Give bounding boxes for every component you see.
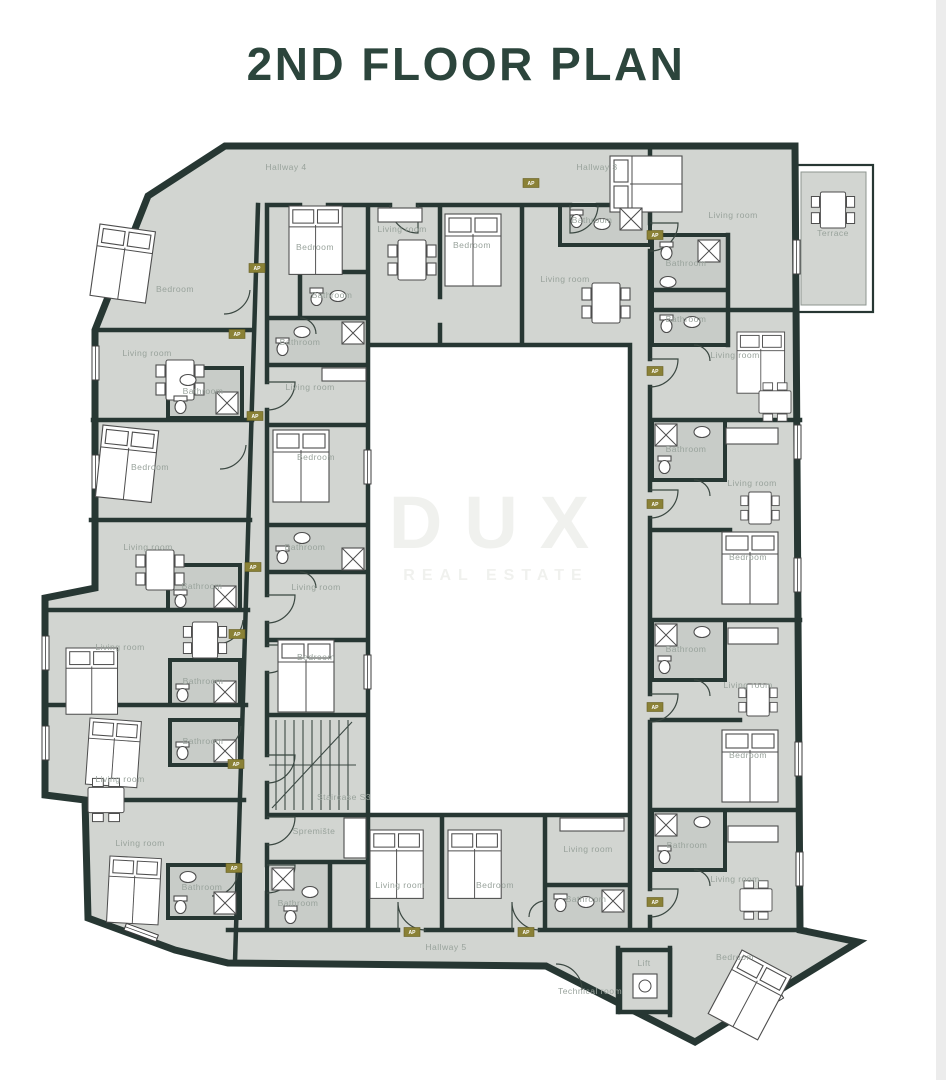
svg-text:AP: AP <box>652 233 660 239</box>
apartment-tag: AP <box>647 703 663 712</box>
room-label-living-room: Living room <box>122 348 171 358</box>
room-label-living-room: Living room <box>291 582 340 592</box>
apartment-tag: AP <box>229 330 245 339</box>
room-label-bathroom: Bathroom <box>666 644 707 654</box>
svg-text:AP: AP <box>528 181 536 187</box>
page-title: 2ND FLOOR PLAN <box>247 38 686 90</box>
apartment-tag: AP <box>647 898 663 907</box>
apartment-tag: AP <box>647 500 663 509</box>
room-label-hallway-5: Hallway 5 <box>425 942 466 952</box>
room-label-living-room: Living room <box>375 880 424 890</box>
floor-plan-drawing: 2ND FLOOR PLAN DUX REAL ESTATE <box>0 0 946 1080</box>
room-label-living-room: Living room <box>723 680 772 690</box>
room-label-spremi-te: Spremište <box>293 826 336 836</box>
svg-text:AP: AP <box>250 565 258 571</box>
room-label-bedroom: Bedroom <box>297 652 335 662</box>
svg-text:AP: AP <box>652 369 660 375</box>
svg-text:AP: AP <box>233 762 241 768</box>
room-label-living-room: Living room <box>377 224 426 234</box>
room-label-living-room: Living room <box>540 274 589 284</box>
terrace <box>795 165 873 312</box>
svg-text:AP: AP <box>652 705 660 711</box>
svg-text:AP: AP <box>652 502 660 508</box>
room-label-terrace: Terrace <box>817 228 849 238</box>
apartment-tag: AP <box>228 760 244 769</box>
apartment-tag: AP <box>404 928 420 937</box>
apartment-tag: AP <box>518 928 534 937</box>
room-label-bathroom: Bathroom <box>566 894 607 904</box>
watermark: DUX REAL ESTATE <box>389 481 611 584</box>
apartment-tag: AP <box>247 412 263 421</box>
apartment-tag: AP <box>647 231 663 240</box>
room-label-bedroom: Bedroom <box>729 750 767 760</box>
room-label-bathroom: Bathroom <box>183 736 224 746</box>
svg-text:AP: AP <box>523 930 531 936</box>
room-label-bathroom: Bathroom <box>182 581 223 591</box>
apartment-tag: AP <box>226 864 242 873</box>
room-label-bathroom: Bathroom <box>312 290 353 300</box>
room-label-bathroom: Bathroom <box>278 898 319 908</box>
room-label-living-room: Living room <box>710 350 759 360</box>
room-label-living-room: Living room <box>563 844 612 854</box>
room-label-bathroom: Bathroom <box>280 337 321 347</box>
svg-text:AP: AP <box>234 332 242 338</box>
room-label-bathroom: Bathroom <box>182 882 223 892</box>
apartment-tag: AP <box>249 264 265 273</box>
room-label-living-room: Living room <box>285 382 334 392</box>
room-label-bathroom: Bathroom <box>183 676 224 686</box>
room-label-bathroom: Bathroom <box>666 314 707 324</box>
room-label-bedroom: Bedroom <box>476 880 514 890</box>
room-label-staircase-s3: Staircase S3 <box>317 792 371 802</box>
room-label-lift: Lift <box>637 958 650 968</box>
room-label-bathroom: Bathroom <box>183 386 224 396</box>
room-label-bedroom: Bedroom <box>453 240 491 250</box>
room-label-technical-room: Technical room <box>558 986 622 996</box>
svg-text:AP: AP <box>652 900 660 906</box>
room-label-bathroom: Bathroom <box>285 542 326 552</box>
room-label-bedroom: Bedroom <box>156 284 194 294</box>
room-label-hallway-3: Hallway 3 <box>576 162 617 172</box>
svg-text:AP: AP <box>234 632 242 638</box>
watermark-tagline: REAL ESTATE <box>403 567 588 584</box>
watermark-brand: DUX <box>389 481 611 564</box>
room-label-living-room: Living room <box>727 478 776 488</box>
svg-text:AP: AP <box>252 414 260 420</box>
room-label-hallway-4: Hallway 4 <box>265 162 306 172</box>
apartment-tag: AP <box>229 630 245 639</box>
room-label-living-room: Living room <box>115 838 164 848</box>
svg-text:AP: AP <box>409 930 417 936</box>
room-label-living-room: Living room <box>95 774 144 784</box>
room-label-bathroom: Bathroom <box>667 840 708 850</box>
svg-text:AP: AP <box>231 866 239 872</box>
apartment-tag: AP <box>245 563 261 572</box>
room-label-bedroom: Bedroom <box>296 242 334 252</box>
room-label-living-room: Living room <box>710 874 759 884</box>
svg-text:AP: AP <box>254 266 262 272</box>
room-label-bedroom: Bedroom <box>131 462 169 472</box>
page-edge-band <box>936 0 946 1080</box>
room-label-bathroom: Bathroom <box>666 444 707 454</box>
apartment-tag: AP <box>523 179 539 188</box>
room-label-living-room: Living room <box>95 642 144 652</box>
room-label-bathroom: Bathroom <box>666 258 707 268</box>
room-label-bedroom: Bedroom <box>716 952 754 962</box>
room-label-bedroom: Bedroom <box>729 552 767 562</box>
apartment-tag: AP <box>647 367 663 376</box>
room-label-living-room: Living room <box>708 210 757 220</box>
floor-plan-page: 2ND FLOOR PLAN DUX REAL ESTATE <box>0 0 946 1080</box>
room-label-bathroom: Bathroom <box>572 215 613 225</box>
room-label-living-room: Living room <box>123 542 172 552</box>
room-label-bedroom: Bedroom <box>297 452 335 462</box>
